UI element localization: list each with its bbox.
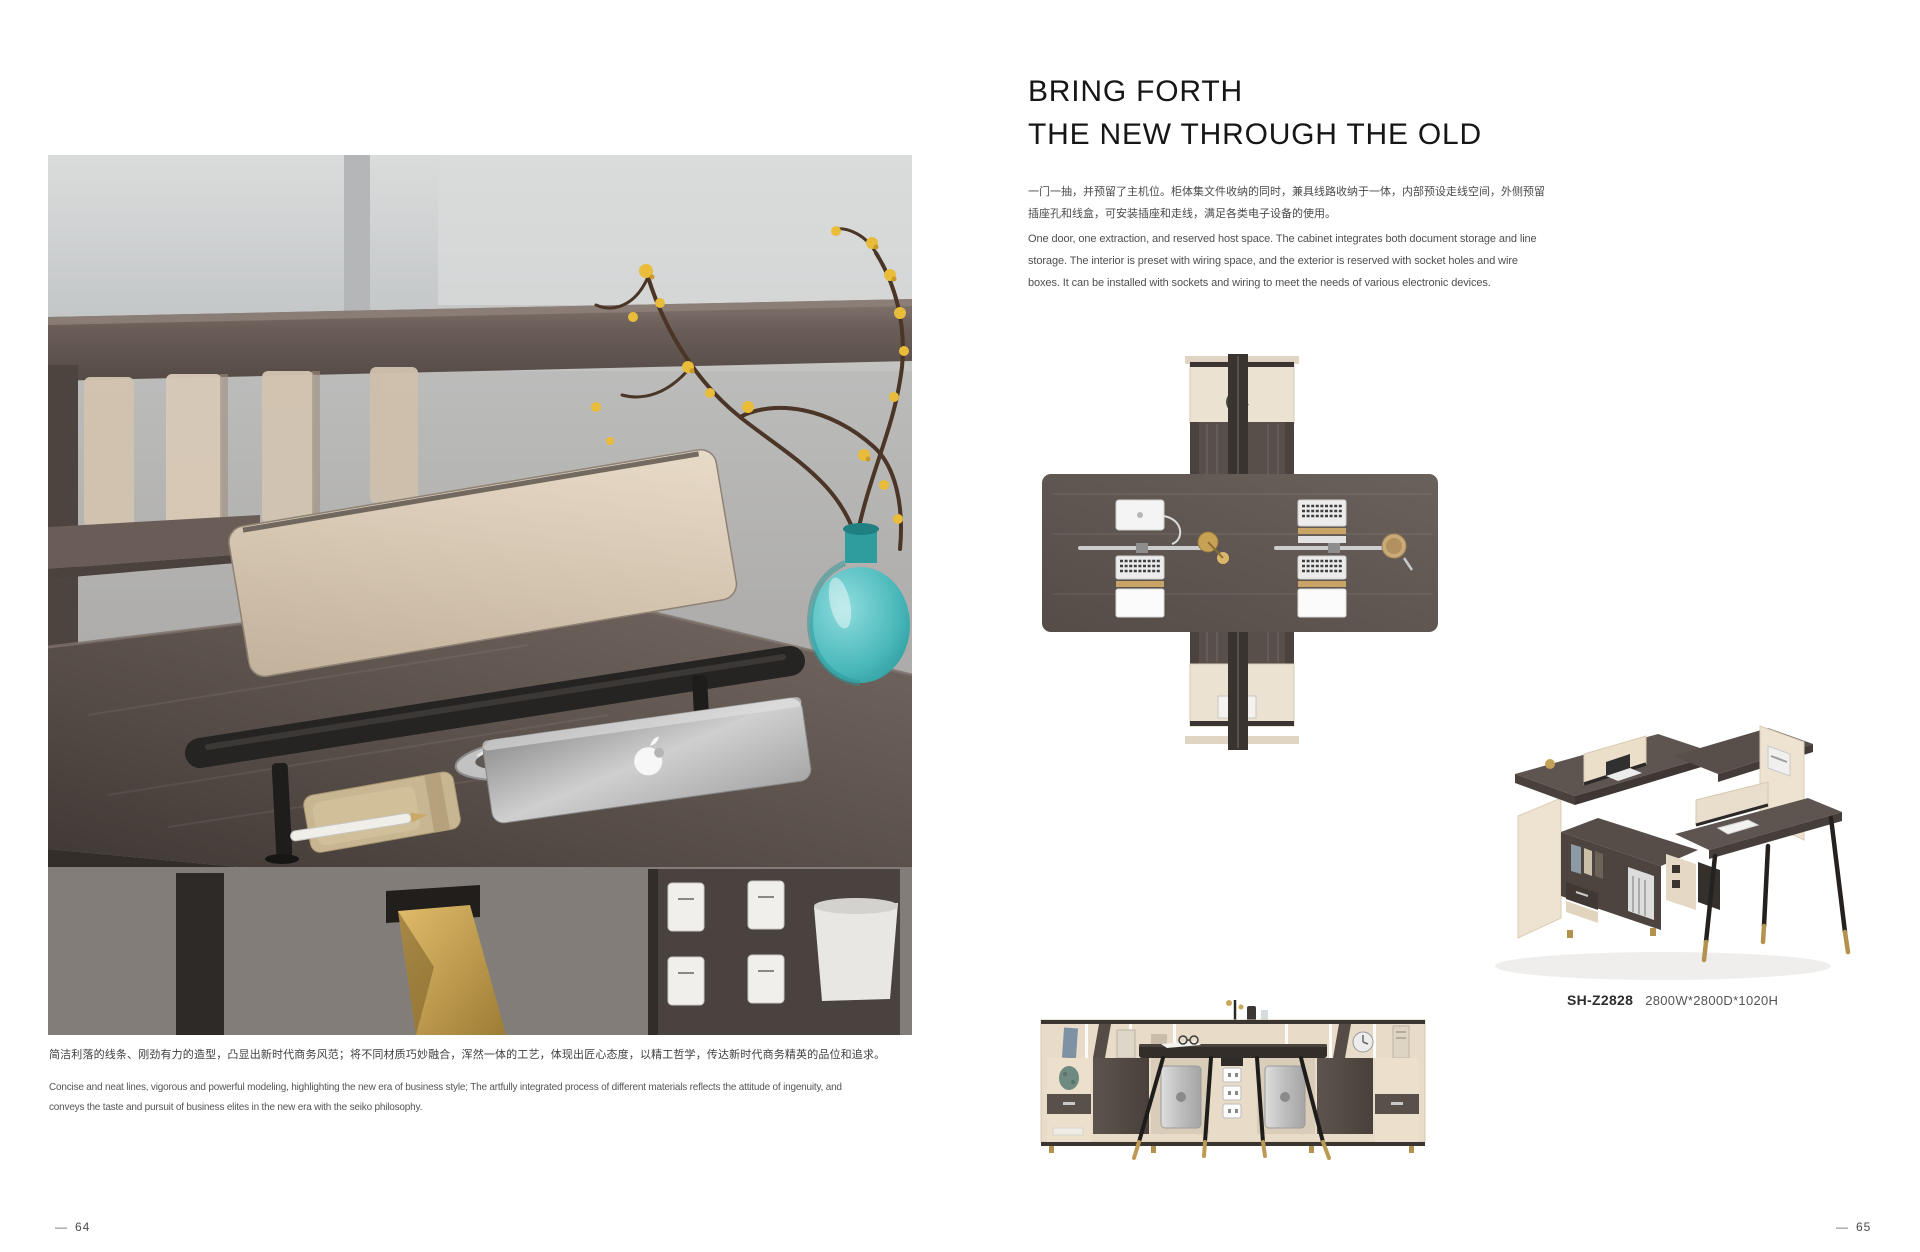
- body-en-line1: One door, one extraction, and reserved h…: [1028, 228, 1537, 250]
- left-caption-en: Concise and neat lines, vigorous and pow…: [49, 1078, 842, 1118]
- iso-shadow: [1495, 952, 1831, 980]
- left-caption-en-line2: conveys the taste and pursuit of busines…: [49, 1098, 842, 1118]
- page-title: BRING FORTH THE NEW THROUGH THE OLD: [1028, 70, 1482, 156]
- page-number-value: 65: [1856, 1220, 1871, 1234]
- body-zh-line1: 一门一抽，并预留了主机位。柜体集文件收纳的同时，兼具线路收纳于一体，内部预设走线…: [1028, 181, 1545, 203]
- page-number-dash: —: [1836, 1220, 1849, 1234]
- product-top-view-image: [1032, 344, 1448, 760]
- product-isometric-image: [1468, 704, 1860, 996]
- page-title-line2: THE NEW THROUGH THE OLD: [1028, 113, 1482, 156]
- product-code: SH-Z28282800W*2800D*1020H: [1567, 992, 1778, 1008]
- product-dimensions: 2800W*2800D*1020H: [1645, 993, 1778, 1008]
- body-en-line2: storage. The interior is preset with wir…: [1028, 250, 1537, 272]
- iso-front-desk: [1666, 782, 1848, 960]
- tv-desk-top: [1042, 474, 1438, 632]
- page-number-value: 64: [75, 1220, 90, 1234]
- waste-bin: [814, 898, 898, 1001]
- page-number-left: —64: [55, 1220, 90, 1234]
- desk-photo: [48, 155, 912, 1035]
- body-text-zh: 一门一抽，并预留了主机位。柜体集文件收纳的同时，兼具线路收纳于一体，内部预设走线…: [1028, 181, 1545, 225]
- product-model: SH-Z2828: [1567, 992, 1633, 1008]
- body-zh-line2: 插座孔和线盒，可安装插座和走线，满足各类电子设备的使用。: [1028, 203, 1545, 225]
- catalog-spread: 简洁利落的线条、刚劲有力的造型，凸显出新时代商务风范；将不同材质巧妙融合，浑然一…: [0, 0, 1920, 1252]
- photo-under-desk: [48, 867, 912, 1035]
- left-caption-en-line1: Concise and neat lines, vigorous and pow…: [49, 1078, 842, 1098]
- page-title-line1: BRING FORTH: [1028, 70, 1482, 113]
- fv-sockets: [1223, 1068, 1241, 1118]
- page-number-right: —65: [1836, 1220, 1871, 1234]
- left-caption-zh: 简洁利落的线条、刚劲有力的造型，凸显出新时代商务风范；将不同材质巧妙融合，浑然一…: [49, 1046, 885, 1062]
- fv-desk-decor: [1226, 1000, 1268, 1022]
- body-text-en: One door, one extraction, and reserved h…: [1028, 228, 1537, 294]
- product-front-view-image: [1033, 998, 1433, 1170]
- fv-lower: [1047, 1058, 1419, 1142]
- body-en-line3: boxes. It can be installed with sockets …: [1028, 272, 1537, 294]
- page-number-dash: —: [55, 1220, 68, 1234]
